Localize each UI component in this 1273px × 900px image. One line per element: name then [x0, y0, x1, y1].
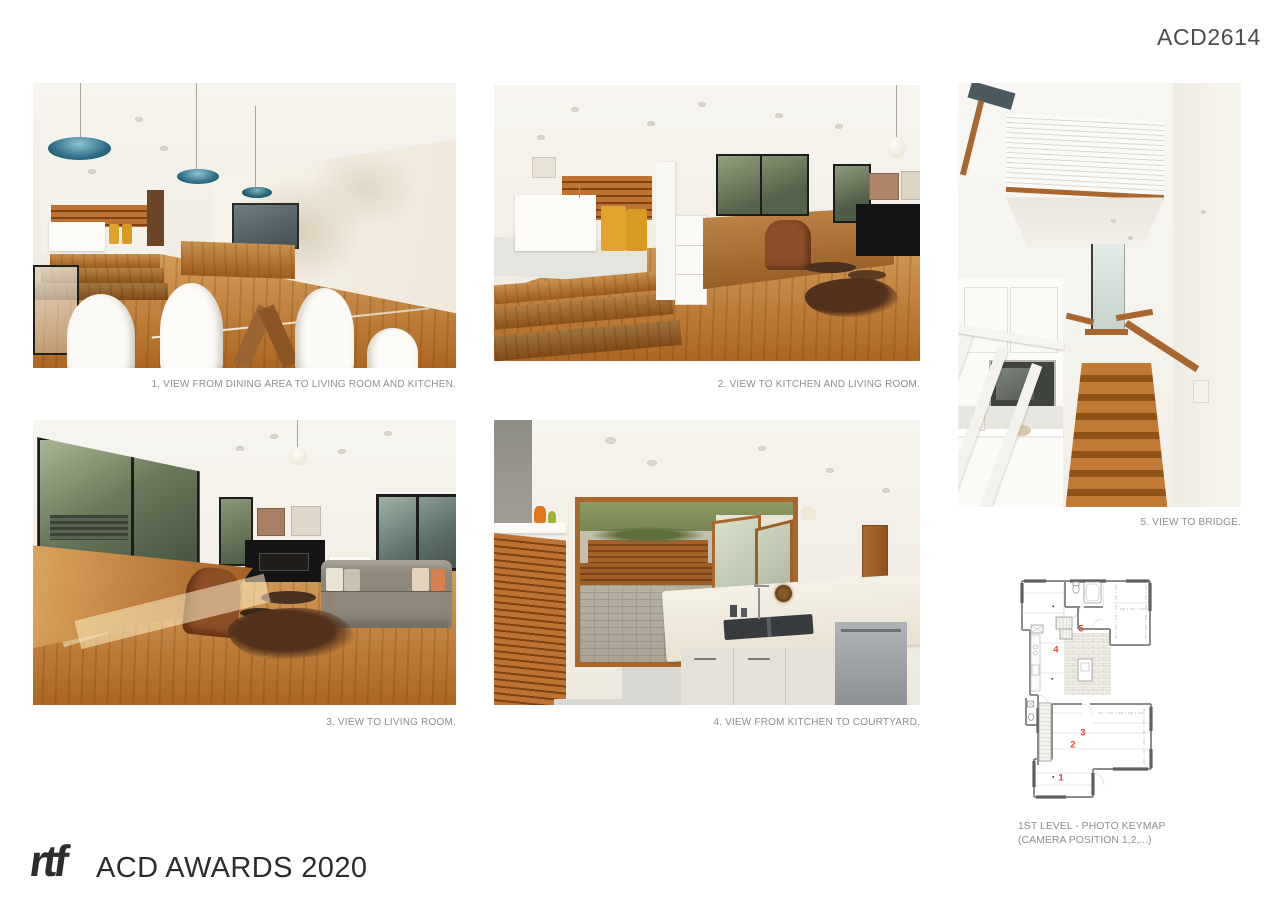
gray-column: [494, 420, 532, 525]
green-vase: [548, 511, 557, 522]
soap-pump: [730, 605, 737, 616]
pendant-cord: [297, 420, 298, 449]
keymap-marker-3: 3: [1080, 728, 1085, 739]
wood-slat-wall: [494, 533, 566, 705]
floor-plan-keymap: 12345: [1018, 573, 1153, 800]
fireplace: [856, 204, 920, 256]
doorway: [147, 190, 164, 246]
bridge-underside: [1006, 197, 1164, 248]
soap-pump: [741, 608, 747, 617]
cabinet-door: [964, 287, 1008, 353]
photo-dining-area: [33, 83, 456, 368]
white-column: [656, 162, 675, 300]
footer-title: ACD AWARDS 2020: [96, 852, 367, 885]
photo-caption-4: 4. VIEW FROM KITCHEN TO COURTYARD.: [494, 717, 920, 728]
photo-caption-5: 5. VIEW TO BRIDGE.: [958, 517, 1241, 528]
photo-bridge-stair: [958, 83, 1241, 507]
pendant-cord: [196, 83, 197, 171]
recessed-light: [775, 113, 783, 118]
wall-sconce: [801, 506, 816, 520]
wall-art: [291, 506, 320, 537]
cushion-line: [321, 591, 452, 592]
bar-stool: [601, 206, 627, 250]
cabinet-seam: [733, 648, 734, 705]
leather-chair: [765, 220, 812, 270]
recessed-light: [758, 446, 766, 451]
sofa-pillow: [344, 569, 360, 591]
faucet: [579, 184, 580, 198]
photo-caption-2: 2. VIEW TO KITCHEN AND LIVING ROOM.: [494, 379, 920, 390]
wood-planter-low: [580, 563, 729, 585]
island-cabinets: [681, 648, 839, 705]
keymap-marker-4: 4: [1053, 644, 1058, 655]
recessed-light: [835, 124, 843, 129]
wall-art: [869, 173, 899, 200]
keymap-marker-2: 2: [1070, 740, 1075, 751]
recessed-light: [571, 107, 579, 112]
light-switch: [1193, 380, 1209, 403]
pendant-cord: [255, 106, 256, 189]
presentation-board: ACD2614: [0, 0, 1273, 900]
firebox: [259, 553, 309, 571]
cubby-shelf: [675, 215, 707, 305]
bar-stool: [626, 209, 647, 250]
photo-kitchen-courtyard: [494, 420, 920, 705]
recessed-light: [135, 117, 143, 122]
pendant-light: [48, 137, 111, 160]
bar-stool: [122, 224, 132, 245]
sofa-pillow: [326, 568, 343, 591]
dishwasher-handle: [841, 629, 902, 632]
cabinet-handle: [694, 658, 716, 660]
dishwasher: [835, 622, 907, 705]
recessed-light: [537, 135, 545, 140]
cabinet-seam: [785, 648, 786, 705]
window-large: [716, 154, 809, 216]
faucet: [758, 588, 760, 619]
pendant-light: [177, 169, 219, 185]
board-code: ACD2614: [1157, 24, 1241, 51]
ledge: [494, 523, 566, 533]
recessed-light: [605, 437, 616, 444]
shelf-line: [676, 274, 706, 275]
wood-stairs: [1066, 363, 1168, 507]
pendant-cord: [896, 85, 897, 140]
keymap-marker-1: 1: [1058, 772, 1063, 783]
shelf-line: [676, 245, 706, 246]
faucet-spout: [754, 585, 769, 587]
right-wall: [1173, 83, 1241, 507]
cabinet-handle: [748, 658, 770, 660]
recessed-light: [236, 446, 244, 451]
keymap-marker-5: 5: [1078, 624, 1083, 635]
sofa-pillow: [412, 568, 429, 591]
kitchen-alcove: [41, 174, 164, 254]
keymap-caption-line1: 1ST LEVEL - PHOTO KEYMAP: [1018, 820, 1228, 834]
photo-caption-3: 3. VIEW TO LIVING ROOM.: [33, 717, 456, 728]
window-sill: [1085, 329, 1127, 335]
photo-kitchen-living: [494, 85, 920, 361]
dining-chair: [67, 294, 135, 368]
bar-stool: [109, 224, 119, 245]
keymap-caption: 1ST LEVEL - PHOTO KEYMAP (CAMERA POSITIO…: [1018, 820, 1228, 847]
recessed-light: [88, 169, 96, 174]
keymap-markers: 12345: [1018, 573, 1153, 800]
kitchen-island: [515, 195, 596, 250]
bridge-cable-railing: [1006, 113, 1164, 198]
coffee-table: [261, 591, 316, 604]
cowhide-rug: [228, 608, 355, 659]
kitchen-cabinets: [958, 278, 1063, 507]
wood-planter: [588, 540, 707, 562]
orange-vase: [534, 506, 545, 523]
rtf-logo: rtf: [27, 842, 67, 882]
recessed-light: [698, 102, 706, 107]
wood-console: [181, 241, 295, 279]
wall-art: [257, 508, 284, 536]
window-mullion: [416, 497, 419, 568]
wall-art: [901, 171, 920, 201]
photo-living-room: [33, 420, 456, 705]
sofa-pillow-orange: [431, 569, 445, 591]
plants: [593, 527, 704, 543]
wall-art: [532, 157, 555, 178]
floor-strip: [554, 699, 682, 705]
photo-caption-1: 1. VIEW FROM DINING AREA TO LIVING ROOM …: [33, 379, 456, 390]
recessed-light: [1111, 219, 1116, 223]
cowhide-rug: [805, 278, 899, 317]
window-mullion: [760, 156, 762, 214]
fence-reflection: [50, 515, 128, 540]
pendant-cord: [80, 83, 81, 140]
recessed-light: [338, 449, 346, 454]
sink-divider: [766, 617, 771, 637]
keymap-caption-line2: (CAMERA POSITION 1,2,...): [1018, 834, 1228, 848]
recessed-light: [1128, 236, 1133, 240]
kitchen-island: [49, 222, 105, 251]
recessed-light: [160, 146, 168, 151]
coffee-table: [805, 262, 856, 273]
